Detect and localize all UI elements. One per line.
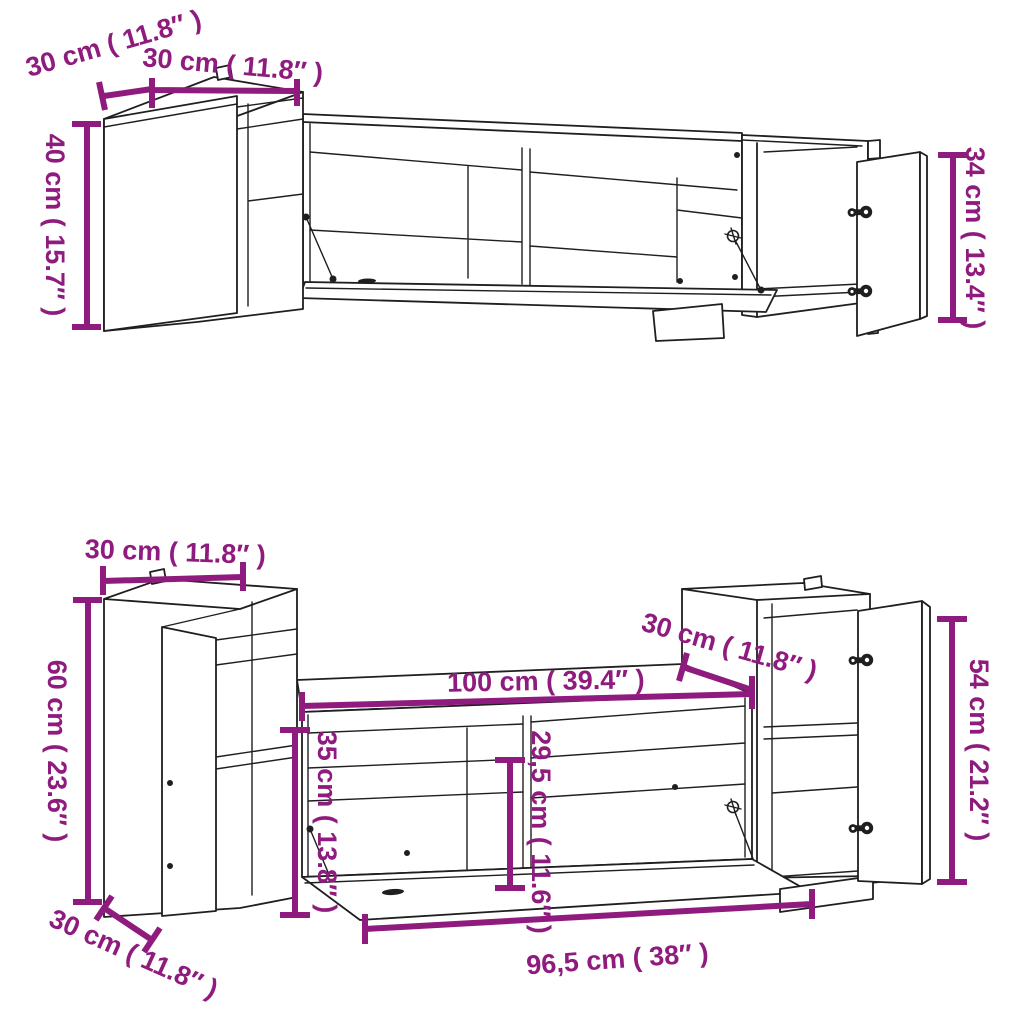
dimension-bottom-height-right: 54 cm ( 21.2″ )	[937, 619, 994, 882]
door-pin	[167, 863, 173, 869]
dimension-bottom-height-left: 60 cm ( 23.6″ )	[42, 600, 102, 902]
top-center-cabinet	[303, 114, 742, 302]
dimension-top-height-right: 34 cm ( 13.4″ )	[938, 147, 990, 330]
dim-label: 35 cm ( 13.8″ )	[312, 731, 342, 914]
door-pin	[167, 780, 173, 786]
dim-label: 29,5 cm ( 11.6″ )	[526, 730, 556, 934]
dimension-top-height-left: 40 cm ( 15.7″ )	[40, 124, 101, 327]
shelf-pin	[404, 850, 410, 856]
dim-label: 54 cm ( 21.2″ )	[964, 659, 994, 842]
open-door	[104, 96, 237, 331]
bottom-left-cabinet	[104, 569, 297, 917]
top-left-cabinet	[104, 65, 303, 331]
bottom-unit-drawing	[104, 569, 930, 920]
open-door	[162, 627, 216, 916]
bottom-right-door	[849, 601, 930, 884]
dim-label: 34 cm ( 13.4″ )	[960, 147, 990, 330]
shelf-pin	[734, 152, 740, 158]
top-unit-drawing	[104, 65, 927, 341]
shelf-pin	[672, 784, 678, 790]
wall-bracket-tab	[804, 576, 822, 590]
shelf-pin	[677, 278, 683, 284]
dim-label: 60 cm ( 23.6″ )	[42, 660, 72, 843]
dim-label: 40 cm ( 15.7″ )	[40, 134, 70, 317]
dim-label: 100 cm ( 39.4″ )	[447, 664, 645, 697]
dim-label: 30 cm ( 11.8″ )	[84, 534, 266, 570]
cabinet-bottom-panel	[653, 304, 724, 341]
shelf-pin	[732, 274, 738, 280]
top-right-door	[848, 152, 927, 336]
product-dimension-diagram: 30 cm ( 11.8″ ) 30 cm ( 11.8″ ) 40 cm ( …	[0, 0, 1024, 1024]
wall-bracket-tab	[868, 140, 880, 159]
diagram-canvas: 30 cm ( 11.8″ ) 30 cm ( 11.8″ ) 40 cm ( …	[0, 0, 1024, 1024]
dim-label: 96,5 cm ( 38″ )	[525, 938, 709, 981]
dim-label: 30 cm ( 11.8″ )	[45, 903, 223, 1004]
